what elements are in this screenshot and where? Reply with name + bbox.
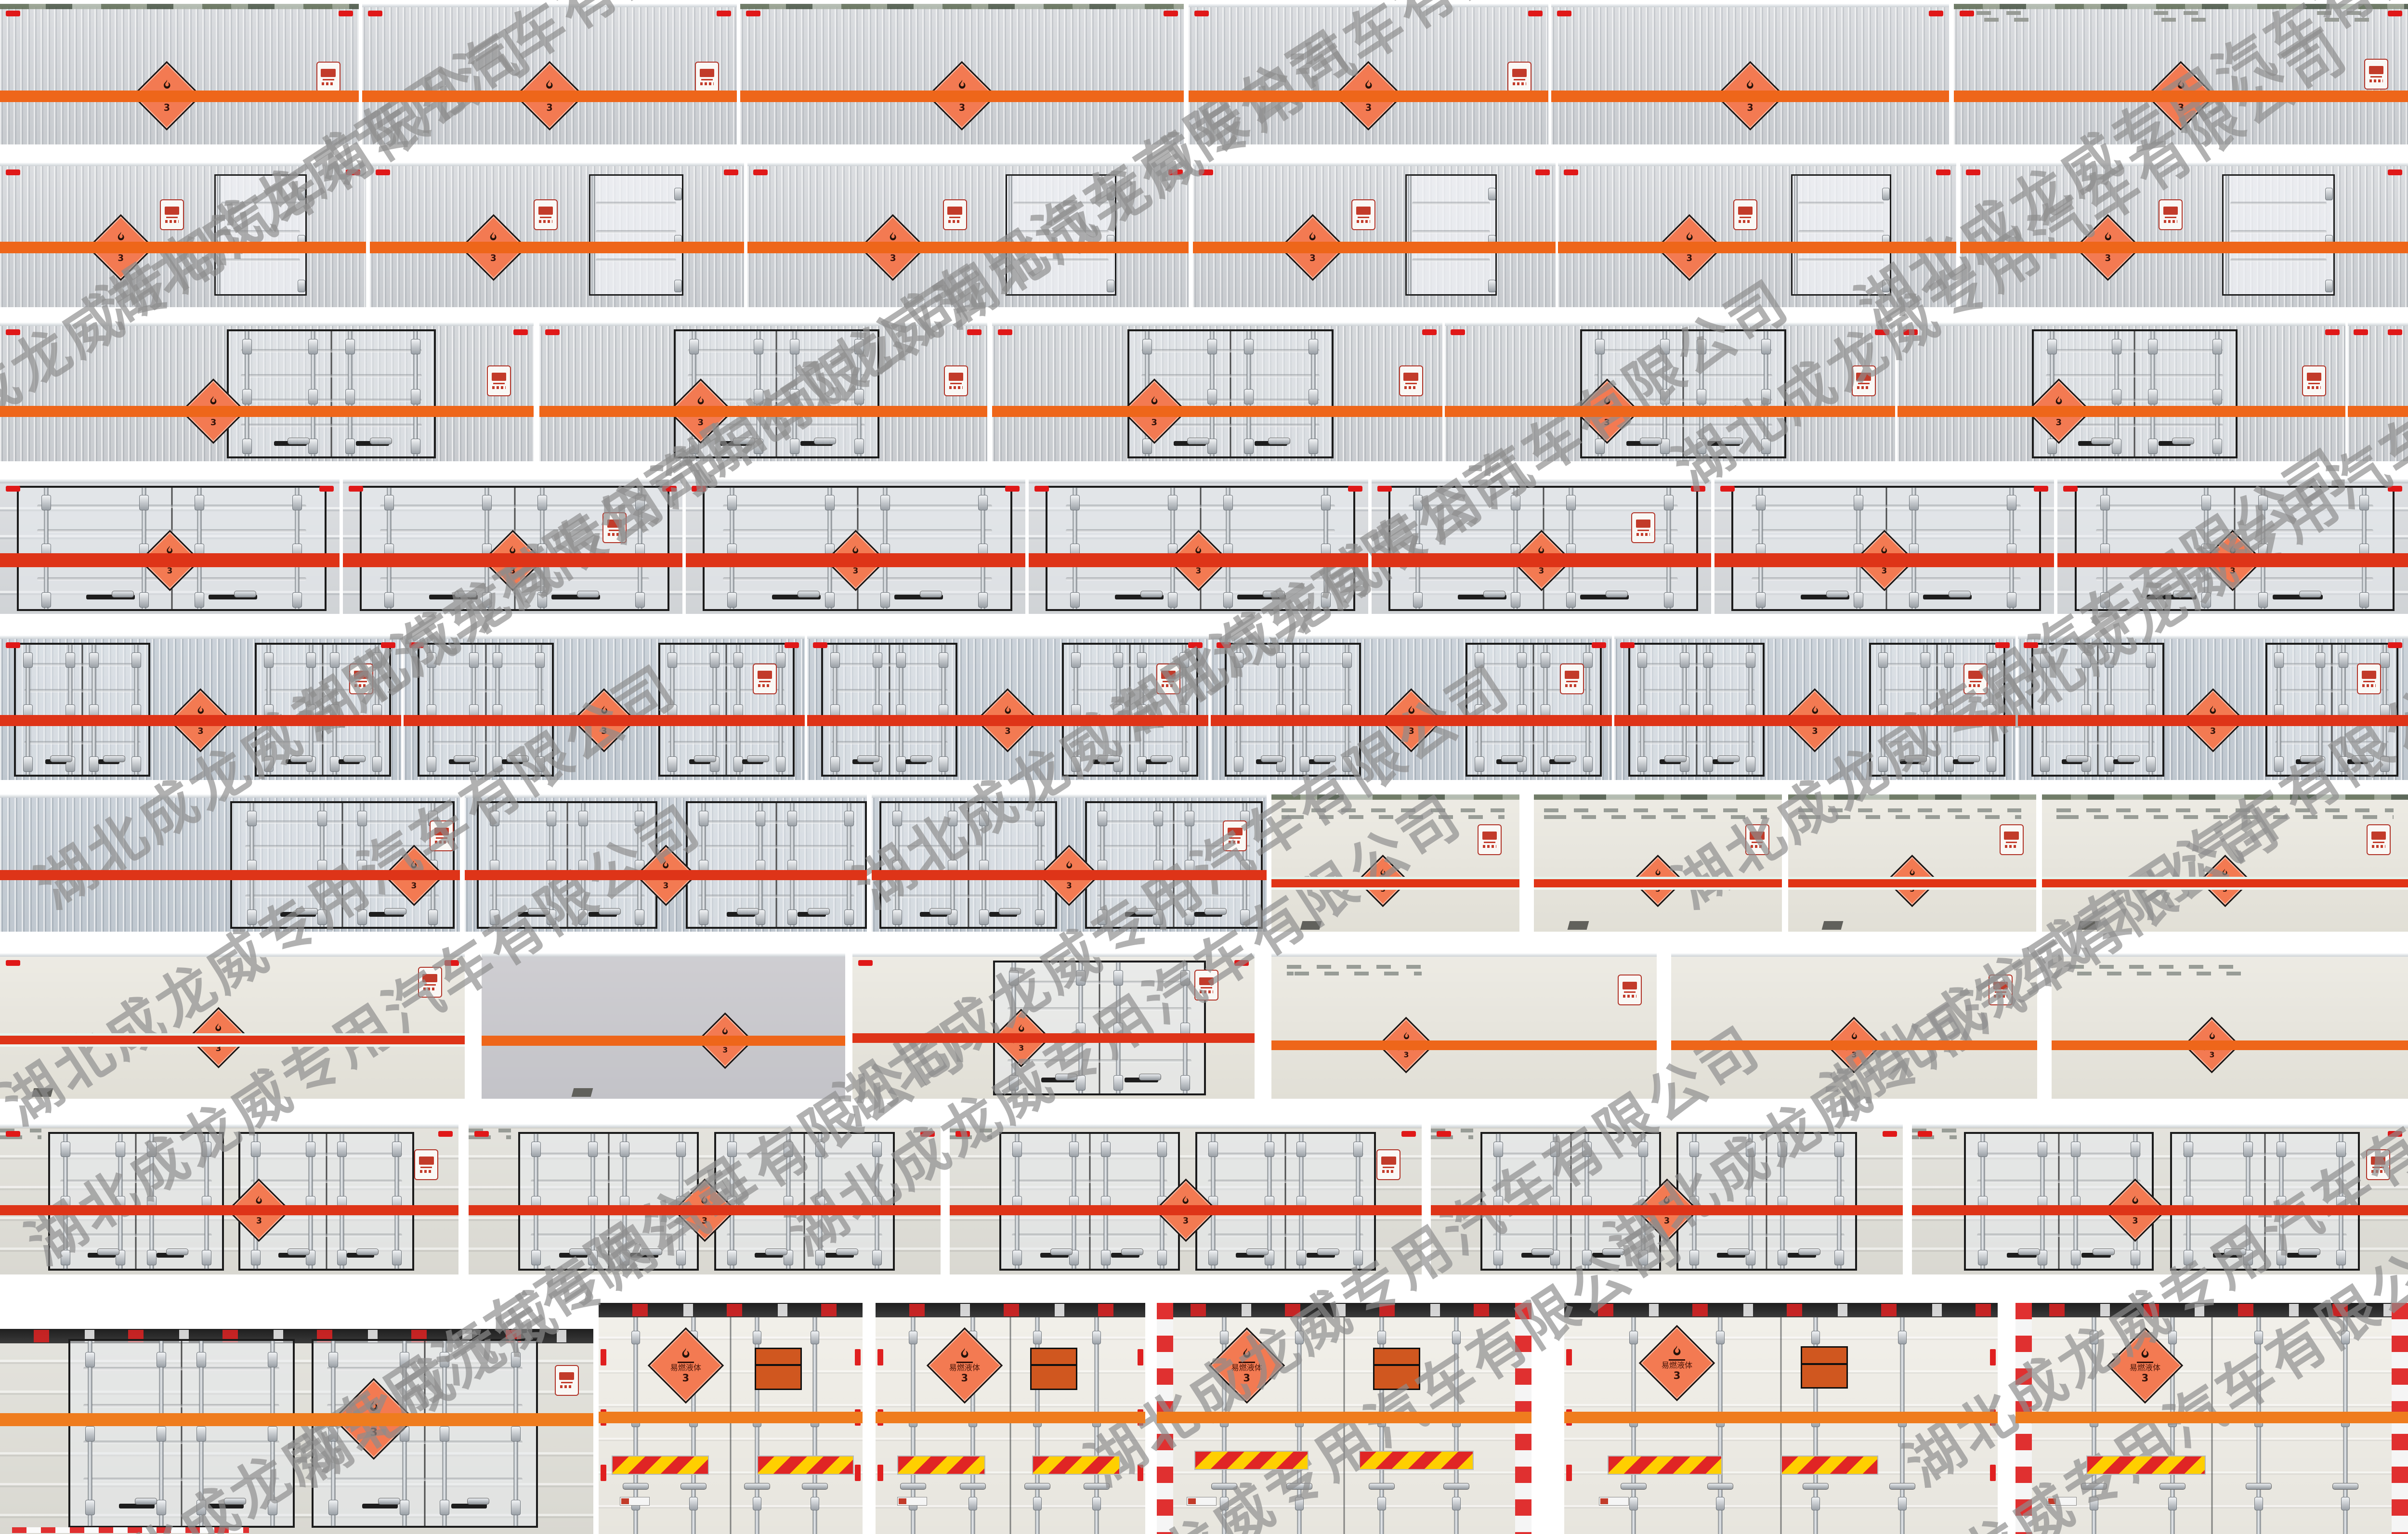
brand-badge-logo [559, 1372, 574, 1380]
door-recess-line [892, 845, 1045, 848]
hazard-stripe [1189, 91, 1548, 102]
flame-icon [1744, 79, 1756, 91]
rod-hinge-bracket [733, 756, 743, 772]
rod-hinge-bracket [392, 1142, 402, 1157]
rod-latch-handle [1803, 1483, 1829, 1490]
rod-hinge-bracket [2090, 1331, 2098, 1344]
placard-class-number: 3 [702, 1216, 707, 1226]
marker-light [2388, 329, 2402, 335]
door-latch-handle [1798, 1248, 1820, 1255]
brand-badge-subtext [1857, 386, 1871, 389]
vent-slots [1282, 808, 1505, 820]
box-roof-edge [1558, 163, 1956, 166]
truck-photo-r6-4: 易燃液体3 [1271, 794, 1519, 932]
rod-hinge-bracket [1342, 652, 1352, 668]
placard-class-number: 3 [890, 253, 896, 263]
rod-hinge-bracket [2184, 1250, 2193, 1265]
marker-light [1620, 642, 1635, 648]
door-latch-handle [356, 1248, 379, 1255]
marker-light [1437, 1131, 1451, 1137]
door-recess-line [1141, 374, 1320, 377]
rod-hinge-bracket [427, 652, 436, 668]
hazard-stripe [1898, 406, 2345, 417]
rod-hinge-bracket [2201, 495, 2211, 510]
door-latch-handle [1139, 1074, 1161, 1080]
marker-light [1564, 169, 1578, 175]
flame-icon [679, 1347, 693, 1361]
hazard-stripe [1431, 1205, 1903, 1215]
rod-hinge-bracket [2341, 1497, 2350, 1510]
background-foliage-strip [1788, 794, 2036, 800]
rear-door-seam [1344, 1317, 1345, 1534]
marker-light [1903, 329, 1918, 335]
rod-hinge-bracket [578, 811, 588, 826]
door-recess-line [596, 202, 677, 205]
rod-hinge-bracket [2112, 339, 2121, 354]
hazard-stripe [1558, 242, 1956, 254]
rod-hinge-bracket [2274, 756, 2284, 772]
hazard-placard: 易燃液体3 [1643, 1329, 1711, 1397]
rod-hinge-bracket [1944, 756, 1954, 772]
marker-light [717, 11, 731, 16]
door-latch-handle [1958, 755, 1980, 762]
truck-photo-r9-5: 易燃液体3 [1564, 1303, 1998, 1534]
placard-class-number: 3 [1687, 253, 1693, 263]
rod-hinge-bracket [2007, 592, 2016, 608]
door-recess-line [1475, 741, 1592, 744]
rod-hinge-bracket [195, 592, 204, 608]
door-latch-handle [2091, 438, 2113, 444]
rod-hinge-bracket [89, 652, 99, 668]
truck-photo-r3-6 [2348, 323, 2408, 461]
rod-hinge-bracket [1220, 1497, 1229, 1510]
brand-badge-line [1637, 530, 1649, 531]
rod-hinge-bracket [909, 1331, 917, 1344]
rod-hinge-bracket [753, 1331, 761, 1344]
vent-slots [1287, 965, 1422, 976]
rod-hinge-bracket [89, 756, 99, 772]
brand-badge-subtext [1565, 684, 1579, 687]
rod-hinge-bracket [880, 495, 890, 510]
rod-hinge-bracket [1761, 389, 1771, 404]
flame-icon [699, 1195, 710, 1206]
rod-hinge-bracket [2184, 1142, 2193, 1157]
rod-hinge-bracket [667, 756, 677, 772]
door-latch-handle [1187, 438, 1209, 444]
rod-hinge-bracket [157, 1426, 166, 1442]
rod-hinge-bracket [825, 592, 835, 608]
blank-hazard-panel [1030, 1348, 1077, 1390]
flame-icon [1064, 860, 1074, 871]
marker-light [349, 486, 363, 492]
door-latch-handle [1905, 755, 1927, 762]
license-plate [620, 1497, 650, 1506]
marker-light [1401, 1131, 1416, 1137]
door-recess-line [727, 1180, 882, 1183]
door-recess-line [2183, 1234, 2347, 1237]
placard-class-number: 3 [1151, 417, 1157, 428]
brand-badge-subtext [1513, 82, 1526, 85]
hazard-stripe [876, 1412, 1145, 1423]
box-roof-edge [0, 323, 534, 326]
cargo-door-pair [999, 1132, 1180, 1271]
brand-badge-line [1383, 1167, 1394, 1168]
marker-light [513, 329, 528, 335]
brand-badge-logo [1623, 982, 1637, 990]
rod-hinge-bracket [948, 811, 957, 826]
rod-hinge-bracket [1353, 1250, 1363, 1265]
door-recess-line [1008, 1007, 1191, 1011]
rod-hinge-bracket [1493, 1142, 1503, 1157]
door-latch-handle [1268, 438, 1290, 444]
truck-photo-r2-1: 易燃液体3 [0, 163, 366, 307]
reflective-chevron-strip [1608, 1456, 1722, 1475]
rod-hinge-bracket [727, 1250, 737, 1265]
rod-hinge-bracket [308, 389, 318, 404]
door-hinge [674, 188, 682, 200]
brand-badge-line [1970, 681, 1981, 682]
rod-hinge-bracket [2243, 1142, 2253, 1157]
brand-badge-logo [354, 671, 368, 679]
brand-badge [1376, 1149, 1400, 1180]
rod-hinge-bracket [1353, 1142, 1363, 1157]
brand-badge-subtext [1994, 995, 2007, 998]
hazard-stripe [1211, 715, 1612, 726]
door-recess-line [241, 349, 421, 352]
brand-badge [753, 663, 777, 694]
marker-light [1918, 1131, 1932, 1137]
box-roof-edge [1372, 479, 1711, 482]
door-recess-line [1594, 374, 1772, 377]
hazard-placard: 易燃液体3 [2111, 1332, 2179, 1399]
rod-hinge-bracket [1101, 1142, 1111, 1157]
brand-badge-line [355, 681, 367, 682]
truck-photo-r9-1: 易燃液体3 [0, 1329, 593, 1534]
brand-badge-logo [2369, 66, 2383, 74]
brand-badge-line [609, 530, 620, 531]
roof-marker-rail [876, 1303, 1145, 1317]
rod-hinge-bracket [844, 811, 854, 826]
rod-hinge-bracket [1035, 910, 1045, 925]
flame-icon [213, 1023, 223, 1033]
flame-icon [660, 860, 671, 871]
flame-icon [543, 79, 556, 91]
door-recess-line [2230, 202, 2327, 205]
rod-hinge-bracket [1070, 592, 1080, 608]
marker-light [1451, 329, 1465, 335]
rod-hinge-bracket [2201, 592, 2211, 608]
placard-class-number: 3 [256, 1216, 262, 1226]
placard-label: 易燃液体 [2130, 1364, 2160, 1372]
door-latch-handle [2066, 755, 2088, 762]
rod-hinge-bracket [1296, 1250, 1306, 1265]
reflective-chevron-strip [2086, 1456, 2206, 1475]
placard-class-number: 3 [1309, 253, 1316, 263]
hazard-stripe [1788, 877, 2036, 890]
plate-accent [1600, 1498, 1608, 1504]
rod-hinge-bracket [1142, 439, 1152, 454]
rod-hinge-bracket [776, 652, 785, 668]
door-latch-handle [798, 591, 820, 598]
red-white-bumper-strip [12, 1527, 249, 1533]
rod-hinge-bracket [1240, 910, 1250, 925]
brand-badge-subtext [2307, 386, 2321, 389]
rod-hinge-bracket [1309, 439, 1318, 454]
brand-badge-line [2370, 76, 2382, 78]
marker-light [1194, 11, 1209, 16]
marker-light [1720, 486, 1735, 492]
truck-photo-r2-2: 易燃液体3 [370, 163, 744, 307]
rod-latch-handle [960, 1483, 986, 1490]
blank-hazard-panel [1373, 1348, 1420, 1390]
cargo-door-pair [477, 801, 657, 929]
placard-class-number: 3 [1183, 1216, 1189, 1226]
door-recess-line [1752, 505, 2020, 508]
door-recess-line [1141, 349, 1320, 352]
rod-hinge-bracket [1185, 811, 1194, 826]
brand-badge [418, 967, 442, 998]
hazard-stripe [465, 870, 867, 880]
rod-hinge-bracket [787, 910, 797, 925]
door-recess-line [531, 1153, 686, 1156]
truck-photo-r8-2: 易燃液体3 [469, 1124, 941, 1274]
brand-badge-logo [1228, 828, 1242, 836]
rod-hinge-bracket [811, 1331, 819, 1344]
brand-badge-logo [1750, 832, 1764, 840]
hazard-placard-content: 易燃液体3 [1643, 1329, 1711, 1397]
rod-latch-handle [623, 1483, 649, 1490]
door-recess-line [596, 230, 677, 234]
rod-hinge-bracket [1854, 592, 1863, 608]
rod-hinge-bracket [1689, 1142, 1699, 1157]
rod-hinge-bracket [1113, 1075, 1123, 1091]
hazard-stripe [747, 242, 1189, 254]
door-latch-handle [599, 908, 621, 915]
truck-photo-r1-3: 易燃液体3 [740, 4, 1184, 144]
photo-collage-canvas: 易燃液体3易燃液体3易燃液体3易燃液体3易燃液体3易燃液体3易燃液体3易燃液体3… [0, 0, 2408, 1534]
vent-slots [1544, 808, 1767, 820]
placard-class-number: 3 [1812, 727, 1818, 736]
rod-hinge-bracket [202, 1250, 211, 1265]
door-latch-handle [1664, 755, 1687, 762]
rod-hinge-bracket [1295, 1331, 1304, 1344]
door-recess-line [1879, 741, 1995, 744]
rod-hinge-bracket [2359, 495, 2369, 510]
roof-marker-rail [1564, 1303, 1998, 1317]
door-hinge [1107, 280, 1114, 292]
hazard-stripe [1960, 242, 2408, 254]
side-access-door [589, 174, 683, 296]
rod-hinge-bracket [357, 811, 367, 826]
brand-badge-subtext [1483, 845, 1496, 848]
rod-latch-handle [2332, 1483, 2358, 1490]
door-recess-line [2183, 1153, 2347, 1156]
rod-hinge-bracket [1811, 1331, 1820, 1344]
brand-badge-logo [2362, 671, 2376, 679]
rod-hinge-bracket [264, 652, 274, 668]
brand-badge [944, 365, 968, 396]
flame-icon [253, 1195, 264, 1206]
rod-hinge-bracket [896, 652, 906, 668]
box-roof-edge [1714, 479, 2054, 482]
door-recess-line [1097, 895, 1250, 898]
brand-badge-line [1858, 383, 1870, 384]
rod-hinge-bracket [268, 1500, 277, 1515]
door-recess-line [489, 820, 645, 824]
rod-hinge-bracket [547, 811, 556, 826]
door-recess-line [241, 424, 421, 427]
placard-class-number: 3 [1852, 1051, 1857, 1059]
cargo-door-pair [1869, 643, 2005, 777]
marker-light [339, 11, 353, 16]
rod-hinge-bracket [1413, 592, 1423, 608]
placard-class-number: 3 [1019, 1043, 1024, 1053]
marker-light [368, 11, 382, 16]
flame-icon [1180, 1195, 1191, 1206]
door-latch-handle [2299, 591, 2321, 598]
rod-hinge-bracket [1629, 1497, 1638, 1510]
box-roof-edge [1912, 1124, 2408, 1128]
marker-light [858, 960, 873, 966]
door-latch-handle [1261, 755, 1283, 762]
rod-hinge-bracket [1746, 652, 1755, 668]
rod-hinge-bracket [157, 1500, 166, 1515]
rod-hinge-bracket [699, 910, 708, 925]
rod-hinge-bracket [1511, 495, 1520, 510]
rod-hinge-bracket [892, 811, 902, 826]
rod-hinge-bracket [2047, 339, 2057, 354]
rod-hinge-bracket [2100, 495, 2110, 510]
rod-hinge-bracket [2112, 389, 2121, 404]
brand-badge-line [540, 217, 551, 218]
rod-hinge-bracket [2277, 1250, 2286, 1265]
rod-hinge-bracket [242, 389, 252, 404]
truck-photo-r8-1: 易燃液体3 [0, 1124, 458, 1274]
rod-hinge-bracket [1452, 1497, 1461, 1510]
truck-photo-r7-1: 易燃液体3 [0, 953, 465, 1099]
door-recess-line [1409, 505, 1677, 508]
brand-badge [1223, 820, 1247, 851]
cargo-door-pair [658, 643, 795, 777]
rod-hinge-bracket [1035, 811, 1045, 826]
hazard-placard-content: 易燃液体3 [652, 1332, 720, 1399]
rod-hinge-bracket [1012, 1142, 1022, 1157]
rod-hinge-bracket [131, 652, 141, 668]
brand-badge [534, 199, 558, 230]
brand-badge [2364, 59, 2388, 90]
door-recess-line [1013, 259, 1109, 262]
brand-badge-subtext [423, 988, 437, 990]
door-recess-line [688, 374, 865, 377]
rod-hinge-bracket [1697, 389, 1706, 404]
rod-hinge-bracket [41, 592, 51, 608]
door-latch-handle [2300, 755, 2322, 762]
rod-latch-handle [1889, 1483, 1915, 1490]
hazard-stripe [0, 406, 534, 417]
door-recess-line [831, 741, 948, 744]
rod-hinge-bracket [787, 811, 797, 826]
rod-hinge-bracket [1244, 439, 1254, 454]
rod-hinge-bracket [202, 1142, 211, 1157]
rod-hinge-bracket [1778, 1142, 1787, 1157]
marker-light [545, 329, 560, 335]
rod-hinge-bracket [676, 1250, 686, 1265]
rod-hinge-bracket [41, 495, 51, 510]
rod-hinge-bracket [2212, 339, 2222, 354]
brand-badge-line [2308, 383, 2320, 384]
door-recess-line [2046, 374, 2223, 377]
reflective-chevron-strip [757, 1456, 854, 1475]
background-foliage-strip [1271, 794, 1519, 800]
rod-hinge-bracket [753, 1497, 761, 1510]
truck-photo-r6-3: 易燃液体3 [872, 794, 1267, 932]
rod-hinge-bracket [292, 592, 302, 608]
door-latch-handle [747, 755, 769, 762]
rod-hinge-bracket [815, 1250, 825, 1265]
placard-class-number: 3 [1066, 881, 1072, 890]
rod-hinge-bracket [85, 1500, 95, 1515]
brand-badge-subtext [165, 220, 179, 223]
brand-badge [1852, 365, 1876, 396]
door-latch-handle [836, 1248, 858, 1255]
brand-badge [695, 62, 719, 92]
rod-hinge-bracket [1208, 1250, 1218, 1265]
door-recess-line [241, 374, 421, 377]
door-latch-handle [1554, 755, 1576, 762]
box-roof-edge [1189, 4, 1548, 7]
flame-icon [1653, 868, 1662, 877]
placard-class-number: 3 [411, 881, 417, 890]
rod-hinge-bracket [1660, 389, 1670, 404]
marker-light [2024, 642, 2038, 648]
brand-badge-subtext [492, 386, 506, 389]
door-hinge [1882, 280, 1890, 292]
hazard-stripe [2057, 553, 2408, 567]
placard-class-number: 3 [2142, 1372, 2149, 1384]
box-roof-edge [1614, 636, 2015, 639]
rod-hinge-bracket [1300, 652, 1309, 668]
cargo-door-pair [1480, 1132, 1662, 1271]
marker-light [813, 642, 827, 648]
door-latch-handle [507, 755, 529, 762]
door-recess-line [1235, 663, 1351, 666]
box-roof-edge [950, 1124, 1422, 1128]
rod-hinge-bracket [1987, 756, 1996, 772]
door-recess-line [1208, 1234, 1363, 1237]
door-recess-line [2183, 1180, 2347, 1183]
rod-hinge-bracket [844, 910, 854, 925]
placard-class-number: 3 [2056, 417, 2062, 428]
door-hinge [1882, 188, 1890, 200]
door-latch-handle [1055, 1074, 1077, 1080]
rod-hinge-bracket [790, 339, 799, 354]
rod-hinge-bracket [1179, 756, 1189, 772]
brand-badge-logo [1512, 69, 1527, 77]
plate-accent [1188, 1498, 1196, 1504]
rear-door-seam [730, 1317, 732, 1534]
placard-class-number: 3 [959, 102, 965, 113]
rod-hinge-bracket [1276, 652, 1286, 668]
rod-hinge-bracket [2380, 652, 2390, 668]
post-reflector [1566, 1465, 1572, 1481]
vent-slots [1976, 11, 2031, 23]
brand-badge-subtext [2362, 684, 2376, 687]
door-latch-handle [2118, 755, 2140, 762]
rod-hinge-bracket [1583, 756, 1593, 772]
post-reflector [601, 1349, 606, 1365]
door-recess-line [83, 1441, 279, 1444]
brand-badge-logo [949, 373, 963, 381]
